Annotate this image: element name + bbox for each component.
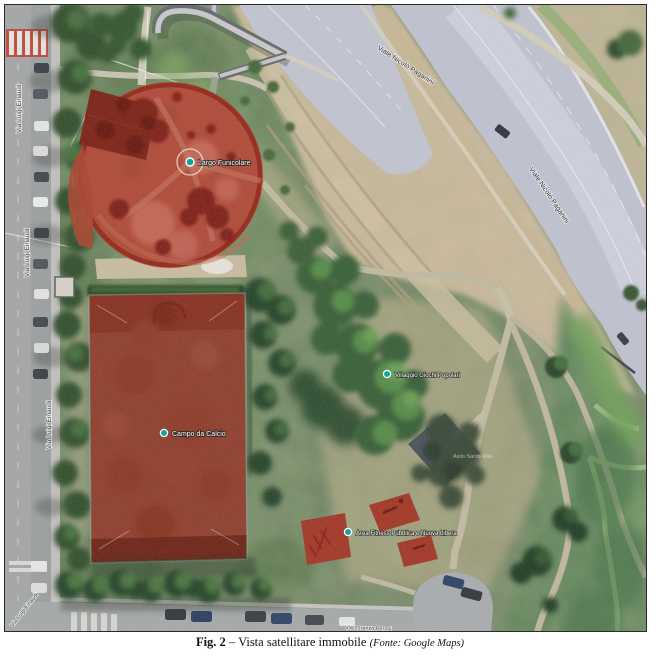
svg-text:Campo da Calcio: Campo da Calcio xyxy=(172,431,226,438)
svg-text:Via Lorenzo Perosi: Via Lorenzo Perosi xyxy=(345,625,392,631)
svg-text:Asilo Santa Rita: Asilo Santa Rita xyxy=(453,454,493,460)
svg-text:Via Luigi Einaudi: Via Luigi Einaudi xyxy=(46,401,53,449)
svg-text:Via Luigi Einaudi: Via Luigi Einaudi xyxy=(24,229,31,277)
svg-text:Area Fitness Pubblica e Nuova: Area Fitness Pubblica e Nuova Libera xyxy=(356,531,457,537)
svg-text:Largo Funicolare: Largo Funicolare xyxy=(198,160,251,167)
svg-text:Villaggio Giochi Popolari: Villaggio Giochi Popolari xyxy=(395,373,460,379)
svg-text:Via Luigi Einaudi: Via Luigi Einaudi xyxy=(16,85,23,133)
